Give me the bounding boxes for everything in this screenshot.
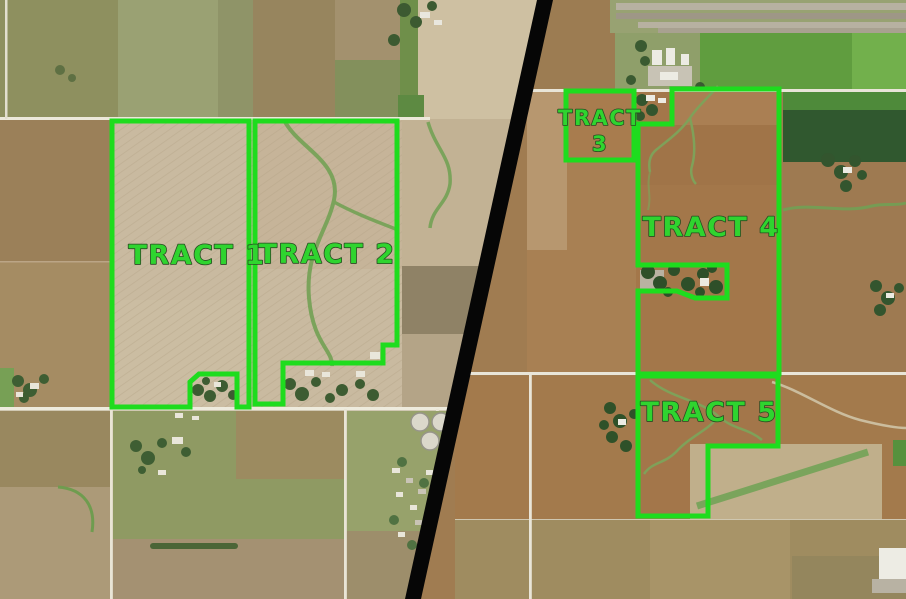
tract-2-label: TRACT 2 [258, 239, 395, 270]
tract-4-label: TRACT 4 [642, 212, 779, 243]
tract-3-label-line1: TRACT [558, 106, 642, 130]
tract-5-label: TRACT 5 [640, 397, 777, 428]
left-top-fields [0, 0, 546, 121]
left-south-fields [0, 411, 457, 599]
split-aerial-map: TRACT 1 TRACT 2 TRACT 3 TRACT 4 TRACT 5 [0, 0, 906, 599]
tract-1-label: TRACT 1 [128, 240, 265, 271]
aerial-map-svg: TRACT 1 TRACT 2 TRACT 3 TRACT 4 TRACT 5 [0, 0, 906, 599]
tract-3-label-line2: 3 [592, 132, 608, 156]
left-west-fields [0, 119, 112, 408]
right-east-fields [783, 90, 906, 373]
